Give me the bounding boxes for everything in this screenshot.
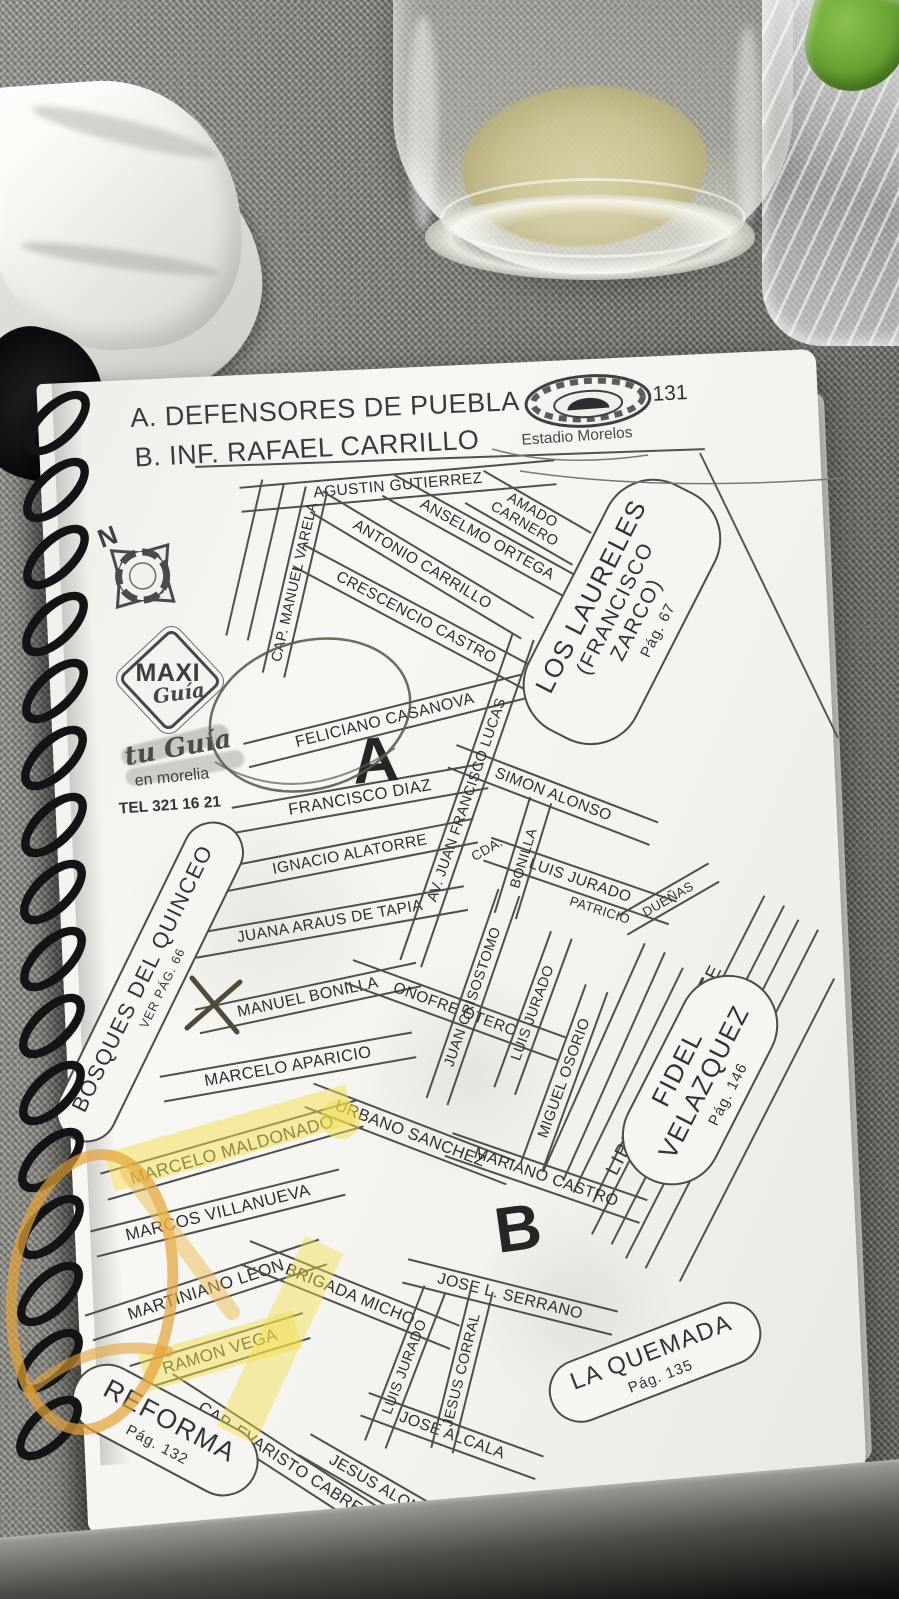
glass-base [425, 194, 755, 280]
compass-n-glyph: N [94, 519, 122, 554]
page-number: 131 [652, 381, 688, 407]
glass-highlight [408, 15, 438, 230]
glass-highlight [735, 25, 761, 225]
photo-of-map-guide: A. DEFENSORES DE PUEBLA B. INF. RAFAEL C… [0, 0, 899, 1599]
compass-icon: N [86, 509, 197, 631]
area-marker-a: A [349, 721, 401, 799]
